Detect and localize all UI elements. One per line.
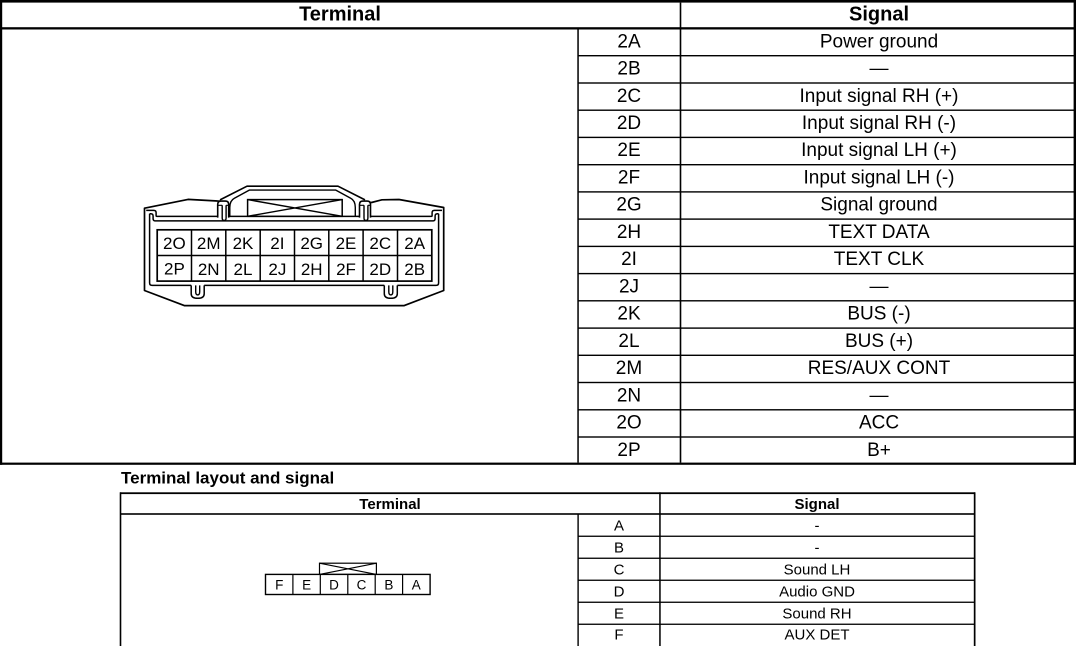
svg-text:2N: 2N <box>198 260 220 279</box>
svg-text:2J: 2J <box>268 260 286 279</box>
svg-text:2O: 2O <box>163 234 186 253</box>
svg-text:Sound LH: Sound LH <box>784 561 851 578</box>
svg-text:—: — <box>870 276 889 297</box>
svg-text:RES/AUX CONT: RES/AUX CONT <box>808 358 951 379</box>
svg-text:—: — <box>870 59 889 80</box>
svg-text:2N: 2N <box>617 385 641 406</box>
svg-text:—: — <box>870 385 889 406</box>
svg-text:2A: 2A <box>404 234 425 253</box>
svg-text:A: A <box>412 577 421 592</box>
svg-text:2K: 2K <box>233 234 254 253</box>
svg-text:Input signal RH (-): Input signal RH (-) <box>802 113 956 134</box>
svg-text:2F: 2F <box>336 260 356 279</box>
svg-text:2K: 2K <box>617 304 641 325</box>
svg-text:2J: 2J <box>619 276 639 297</box>
svg-text:Audio GND: Audio GND <box>779 583 855 600</box>
svg-text:AUX DET: AUX DET <box>784 627 849 644</box>
svg-text:F: F <box>614 627 623 644</box>
svg-text:2H: 2H <box>301 260 323 279</box>
svg-text:Signal: Signal <box>849 3 909 25</box>
svg-text:D: D <box>614 583 625 600</box>
svg-text:2A: 2A <box>617 31 641 52</box>
svg-text:C: C <box>357 577 367 592</box>
svg-text:Signal: Signal <box>794 496 839 513</box>
svg-text:B: B <box>614 539 624 556</box>
svg-text:D: D <box>329 577 339 592</box>
svg-text:TEXT DATA: TEXT DATA <box>828 222 930 243</box>
svg-text:2P: 2P <box>617 440 640 461</box>
svg-text:BUS (-): BUS (-) <box>847 304 910 325</box>
svg-text:2M: 2M <box>616 358 642 379</box>
svg-text:F: F <box>275 577 283 592</box>
svg-text:Input signal RH (+): Input signal RH (+) <box>800 86 959 107</box>
svg-text:2E: 2E <box>617 140 640 161</box>
svg-text:Terminal: Terminal <box>299 3 381 25</box>
svg-text:2F: 2F <box>618 168 640 189</box>
svg-text:2D: 2D <box>617 113 641 134</box>
svg-text:E: E <box>302 577 311 592</box>
svg-text:Input signal LH (+): Input signal LH (+) <box>801 140 957 161</box>
svg-text:2P: 2P <box>164 260 185 279</box>
svg-text:2I: 2I <box>621 249 637 270</box>
svg-text:2G: 2G <box>616 195 641 216</box>
svg-text:2L: 2L <box>234 260 253 279</box>
svg-text:Terminal layout and signal: Terminal layout and signal <box>121 468 334 487</box>
svg-text:2B: 2B <box>404 260 425 279</box>
svg-text:2E: 2E <box>336 234 357 253</box>
svg-text:2H: 2H <box>617 222 641 243</box>
svg-text:Power ground: Power ground <box>820 31 938 52</box>
svg-text:2O: 2O <box>616 413 641 434</box>
svg-text:C: C <box>614 561 625 578</box>
svg-text:BUS (+): BUS (+) <box>845 331 913 352</box>
svg-text:Input signal LH (-): Input signal LH (-) <box>803 168 954 189</box>
svg-text:B: B <box>384 577 393 592</box>
svg-text:2M: 2M <box>197 234 221 253</box>
svg-text:2G: 2G <box>300 234 323 253</box>
svg-text:ACC: ACC <box>859 413 899 434</box>
svg-text:2C: 2C <box>617 86 641 107</box>
svg-text:-: - <box>815 539 820 556</box>
svg-text:TEXT CLK: TEXT CLK <box>834 249 925 270</box>
svg-text:A: A <box>614 517 624 534</box>
svg-text:2I: 2I <box>270 234 284 253</box>
svg-text:2L: 2L <box>618 331 639 352</box>
svg-text:2B: 2B <box>617 59 640 80</box>
svg-text:2D: 2D <box>369 260 391 279</box>
svg-text:B+: B+ <box>867 440 891 461</box>
svg-text:Sound RH: Sound RH <box>782 605 851 622</box>
svg-text:Terminal: Terminal <box>359 496 420 513</box>
svg-text:2C: 2C <box>369 234 391 253</box>
svg-text:-: - <box>815 517 820 534</box>
svg-text:E: E <box>614 605 624 622</box>
svg-text:Signal ground: Signal ground <box>820 195 937 216</box>
